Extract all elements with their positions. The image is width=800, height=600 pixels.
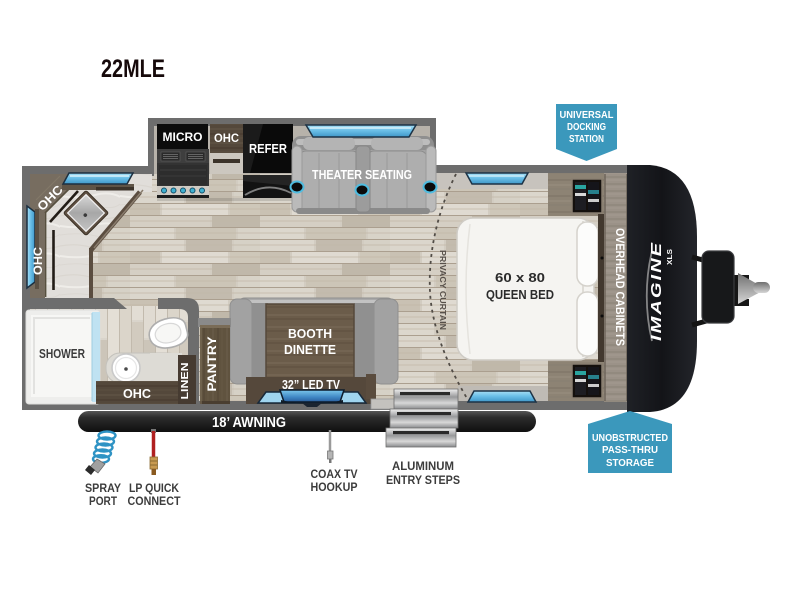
- svg-text:PORT: PORT: [89, 494, 118, 508]
- svg-text:THEATER SEATING: THEATER SEATING: [312, 167, 412, 182]
- svg-text:SHOWER: SHOWER: [39, 347, 85, 361]
- svg-text:LP QUICK: LP QUICK: [129, 481, 179, 495]
- svg-text:ENTRY STEPS: ENTRY STEPS: [386, 473, 460, 487]
- svg-text:OHC: OHC: [214, 133, 239, 145]
- svg-text:60 x 80: 60 x 80: [495, 270, 545, 285]
- svg-text:XLS: XLS: [665, 249, 674, 265]
- svg-text:QUEEN BED: QUEEN BED: [486, 287, 554, 302]
- svg-text:UNIVERSAL: UNIVERSAL: [560, 109, 615, 121]
- svg-text:HOOKUP: HOOKUP: [311, 480, 358, 494]
- svg-text:REFER: REFER: [249, 142, 287, 156]
- svg-text:PASS-THRU: PASS-THRU: [602, 444, 658, 456]
- svg-text:ALUMINUM: ALUMINUM: [392, 459, 454, 473]
- svg-text:SPRAY: SPRAY: [85, 481, 121, 495]
- svg-text:PANTRY: PANTRY: [207, 336, 219, 391]
- svg-text:COAX TV: COAX TV: [311, 467, 358, 481]
- svg-text:BOOTH: BOOTH: [288, 327, 332, 341]
- svg-text:DINETTE: DINETTE: [284, 343, 336, 357]
- svg-text:22MLE: 22MLE: [101, 55, 165, 83]
- svg-text:LINEN: LINEN: [179, 363, 191, 400]
- svg-text:UNOBSTRUCTED: UNOBSTRUCTED: [592, 432, 668, 444]
- svg-text:DOCKING: DOCKING: [567, 121, 606, 133]
- svg-text:STATION: STATION: [569, 133, 604, 145]
- svg-text:IMAGINE: IMAGINE: [648, 241, 665, 341]
- svg-text:OVERHEAD CABINETS: OVERHEAD CABINETS: [613, 228, 627, 346]
- svg-text:OHC: OHC: [123, 387, 151, 401]
- svg-text:OHC: OHC: [31, 247, 45, 275]
- svg-text:18’ AWNING: 18’ AWNING: [212, 415, 286, 431]
- svg-text:PRIVACY CURTAIN: PRIVACY CURTAIN: [438, 250, 447, 330]
- svg-text:MICRO: MICRO: [163, 130, 203, 144]
- svg-text:CONNECT: CONNECT: [128, 494, 182, 508]
- svg-text:STORAGE: STORAGE: [606, 457, 654, 469]
